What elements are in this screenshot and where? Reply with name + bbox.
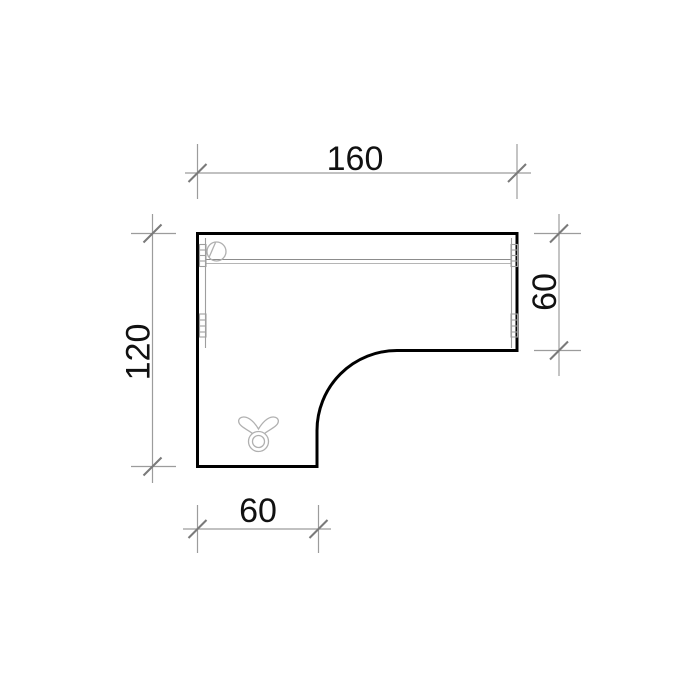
castor-outer-circle bbox=[249, 432, 269, 452]
dimension-label-bottom: 60 bbox=[239, 492, 277, 530]
dimension-label-right: 60 bbox=[526, 273, 564, 311]
drawing-canvas: 160 60 120 60 bbox=[0, 0, 700, 700]
dimension-right: 60 bbox=[526, 214, 581, 376]
dimension-left: 120 bbox=[120, 214, 177, 483]
dimension-bottom: 60 bbox=[183, 492, 331, 553]
dimension-top: 160 bbox=[185, 140, 531, 199]
dimension-label-top: 160 bbox=[327, 140, 384, 178]
desk-outline bbox=[198, 234, 518, 467]
dimension-label-left: 120 bbox=[120, 324, 158, 381]
desk-plan-drawing: 160 60 120 60 bbox=[0, 0, 700, 700]
